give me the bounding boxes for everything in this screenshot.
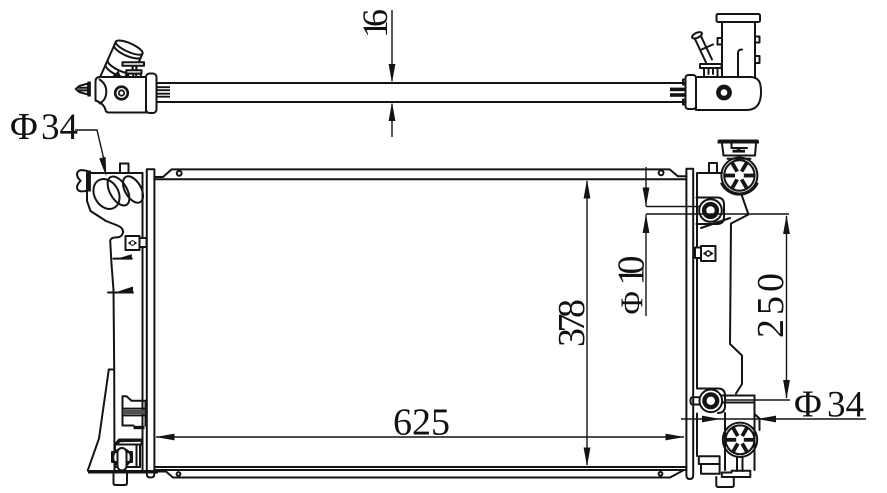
svg-text:Φ: Φ bbox=[10, 106, 38, 148]
svg-text:34: 34 bbox=[41, 107, 78, 148]
svg-text:16: 16 bbox=[355, 9, 395, 38]
svg-text:625: 625 bbox=[393, 402, 450, 444]
svg-text:Φ: Φ bbox=[794, 384, 822, 426]
svg-text:10: 10 bbox=[611, 256, 653, 286]
svg-text:34: 34 bbox=[827, 385, 864, 426]
svg-text:378: 378 bbox=[551, 299, 593, 347]
svg-text:Φ: Φ bbox=[614, 291, 650, 314]
svg-text:250: 250 bbox=[750, 273, 792, 338]
